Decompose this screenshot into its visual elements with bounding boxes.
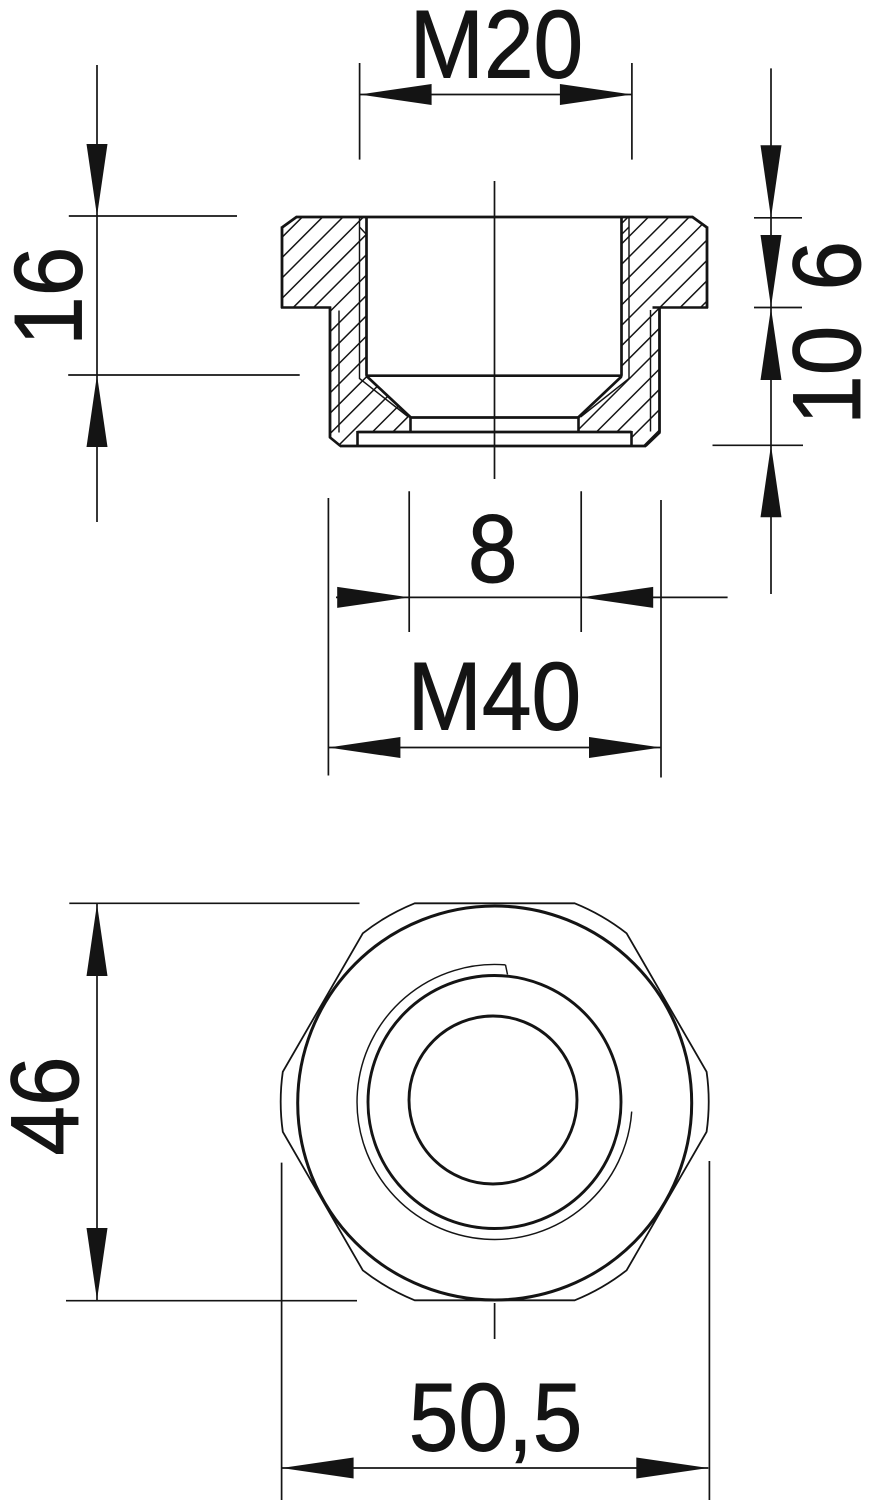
svg-text:10: 10 [772,326,880,425]
svg-text:M20: M20 [410,0,584,98]
svg-text:16: 16 [0,247,102,346]
svg-text:M40: M40 [408,642,582,750]
svg-text:6: 6 [773,241,881,291]
svg-text:50,5: 50,5 [409,1363,583,1471]
svg-text:46: 46 [0,1056,99,1155]
svg-text:8: 8 [468,495,518,603]
